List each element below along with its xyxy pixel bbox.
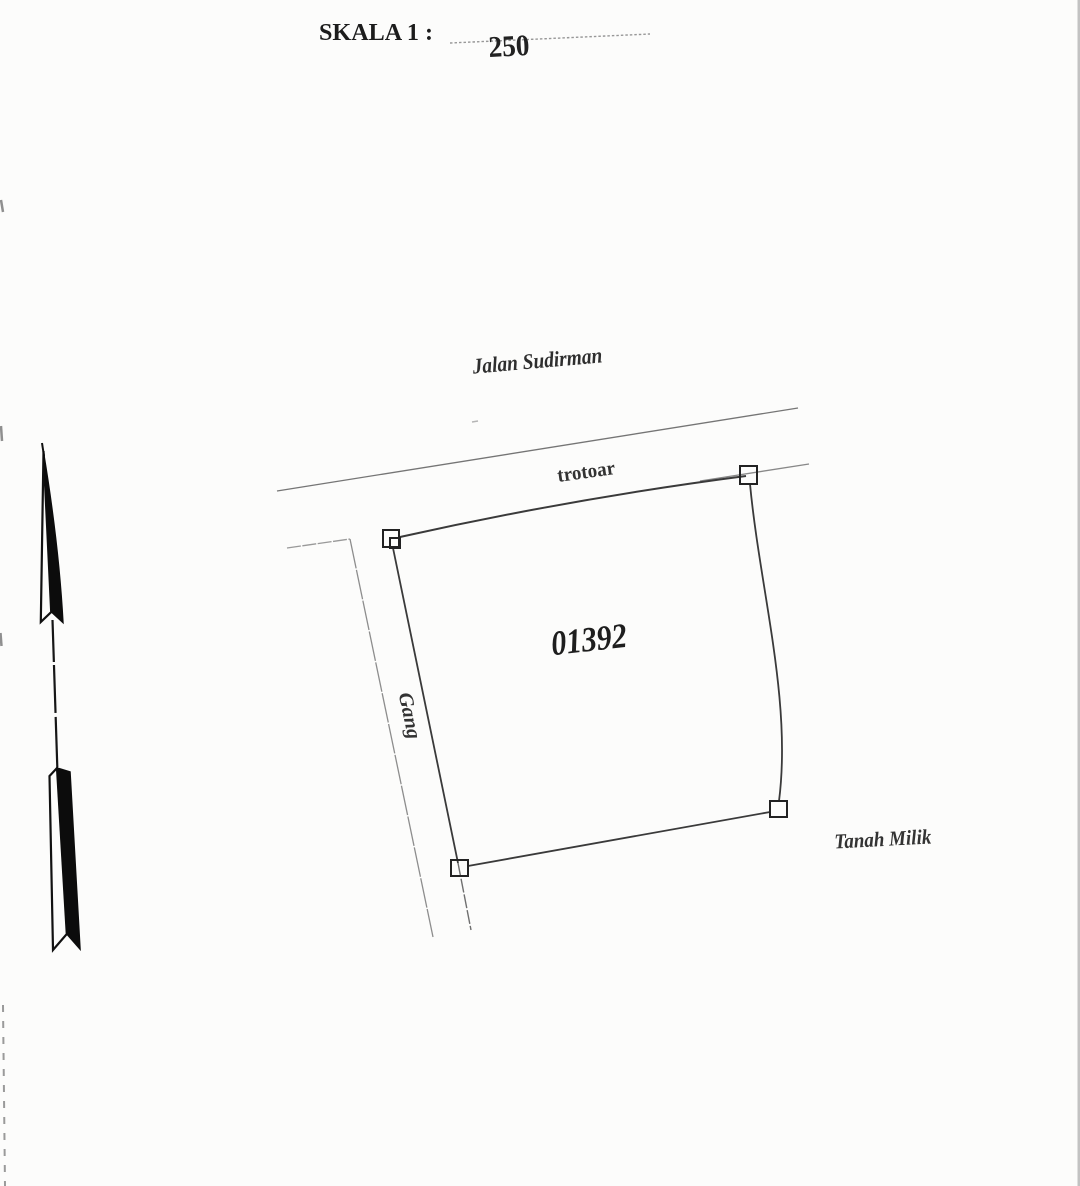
svg-text:SKALA 1 :: SKALA 1 : (319, 20, 433, 46)
svg-text:250: 250 (488, 29, 531, 64)
svg-text:Tanah Milik: Tanah Milik (834, 824, 933, 853)
